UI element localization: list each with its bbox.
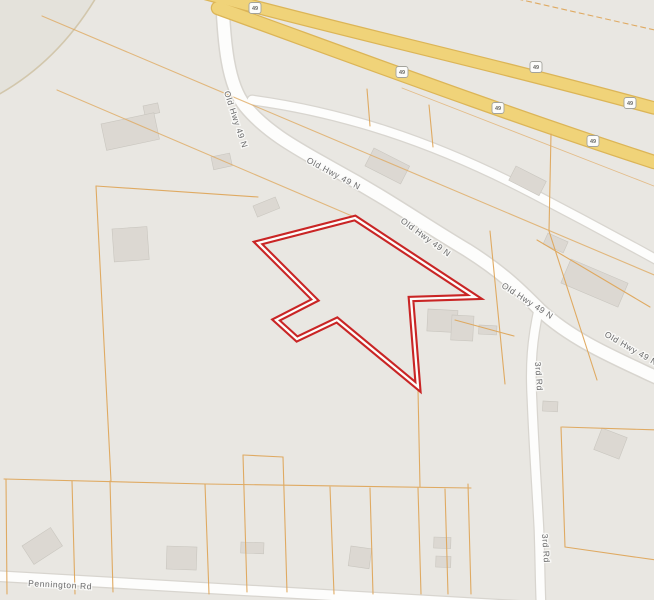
road-label-third-rd: 3rd Rd bbox=[540, 533, 552, 563]
highway-shield: 49 bbox=[249, 3, 261, 14]
highway-shield: 49 bbox=[530, 62, 542, 73]
highway-shield-number: 49 bbox=[399, 70, 405, 76]
building bbox=[434, 537, 451, 549]
building bbox=[112, 227, 149, 262]
parcel-map-canvas[interactable]: 49 49 49 49 49 49 Old Hwy 49 N Old Hwy 4… bbox=[0, 0, 654, 600]
highway-shield: 49 bbox=[492, 103, 504, 114]
building bbox=[542, 401, 558, 412]
road-label-third-rd: 3rd Rd bbox=[533, 361, 545, 391]
building bbox=[436, 556, 451, 568]
map-background bbox=[0, 0, 654, 600]
highway-shield-number: 49 bbox=[590, 139, 596, 145]
highway-shield: 49 bbox=[624, 98, 636, 109]
highway-shield-number: 49 bbox=[533, 65, 539, 71]
highway-shield-number: 49 bbox=[495, 106, 501, 112]
building bbox=[451, 315, 474, 341]
highway-shield: 49 bbox=[396, 67, 408, 78]
building bbox=[166, 546, 197, 570]
building bbox=[348, 546, 372, 569]
building bbox=[479, 325, 497, 335]
building bbox=[241, 542, 264, 554]
highway-shield: 49 bbox=[587, 136, 599, 147]
highway-shield-number: 49 bbox=[627, 101, 633, 107]
highway-shield-number: 49 bbox=[252, 6, 258, 12]
